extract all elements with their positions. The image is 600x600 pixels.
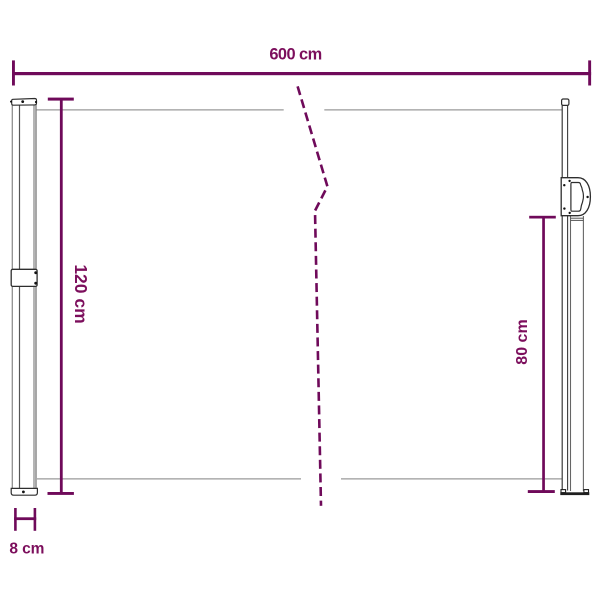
svg-text:8 cm: 8 cm — [9, 540, 44, 557]
svg-text:120 cm: 120 cm — [71, 264, 91, 323]
svg-text:600 cm: 600 cm — [269, 46, 321, 64]
svg-text:80 cm: 80 cm — [514, 319, 531, 364]
